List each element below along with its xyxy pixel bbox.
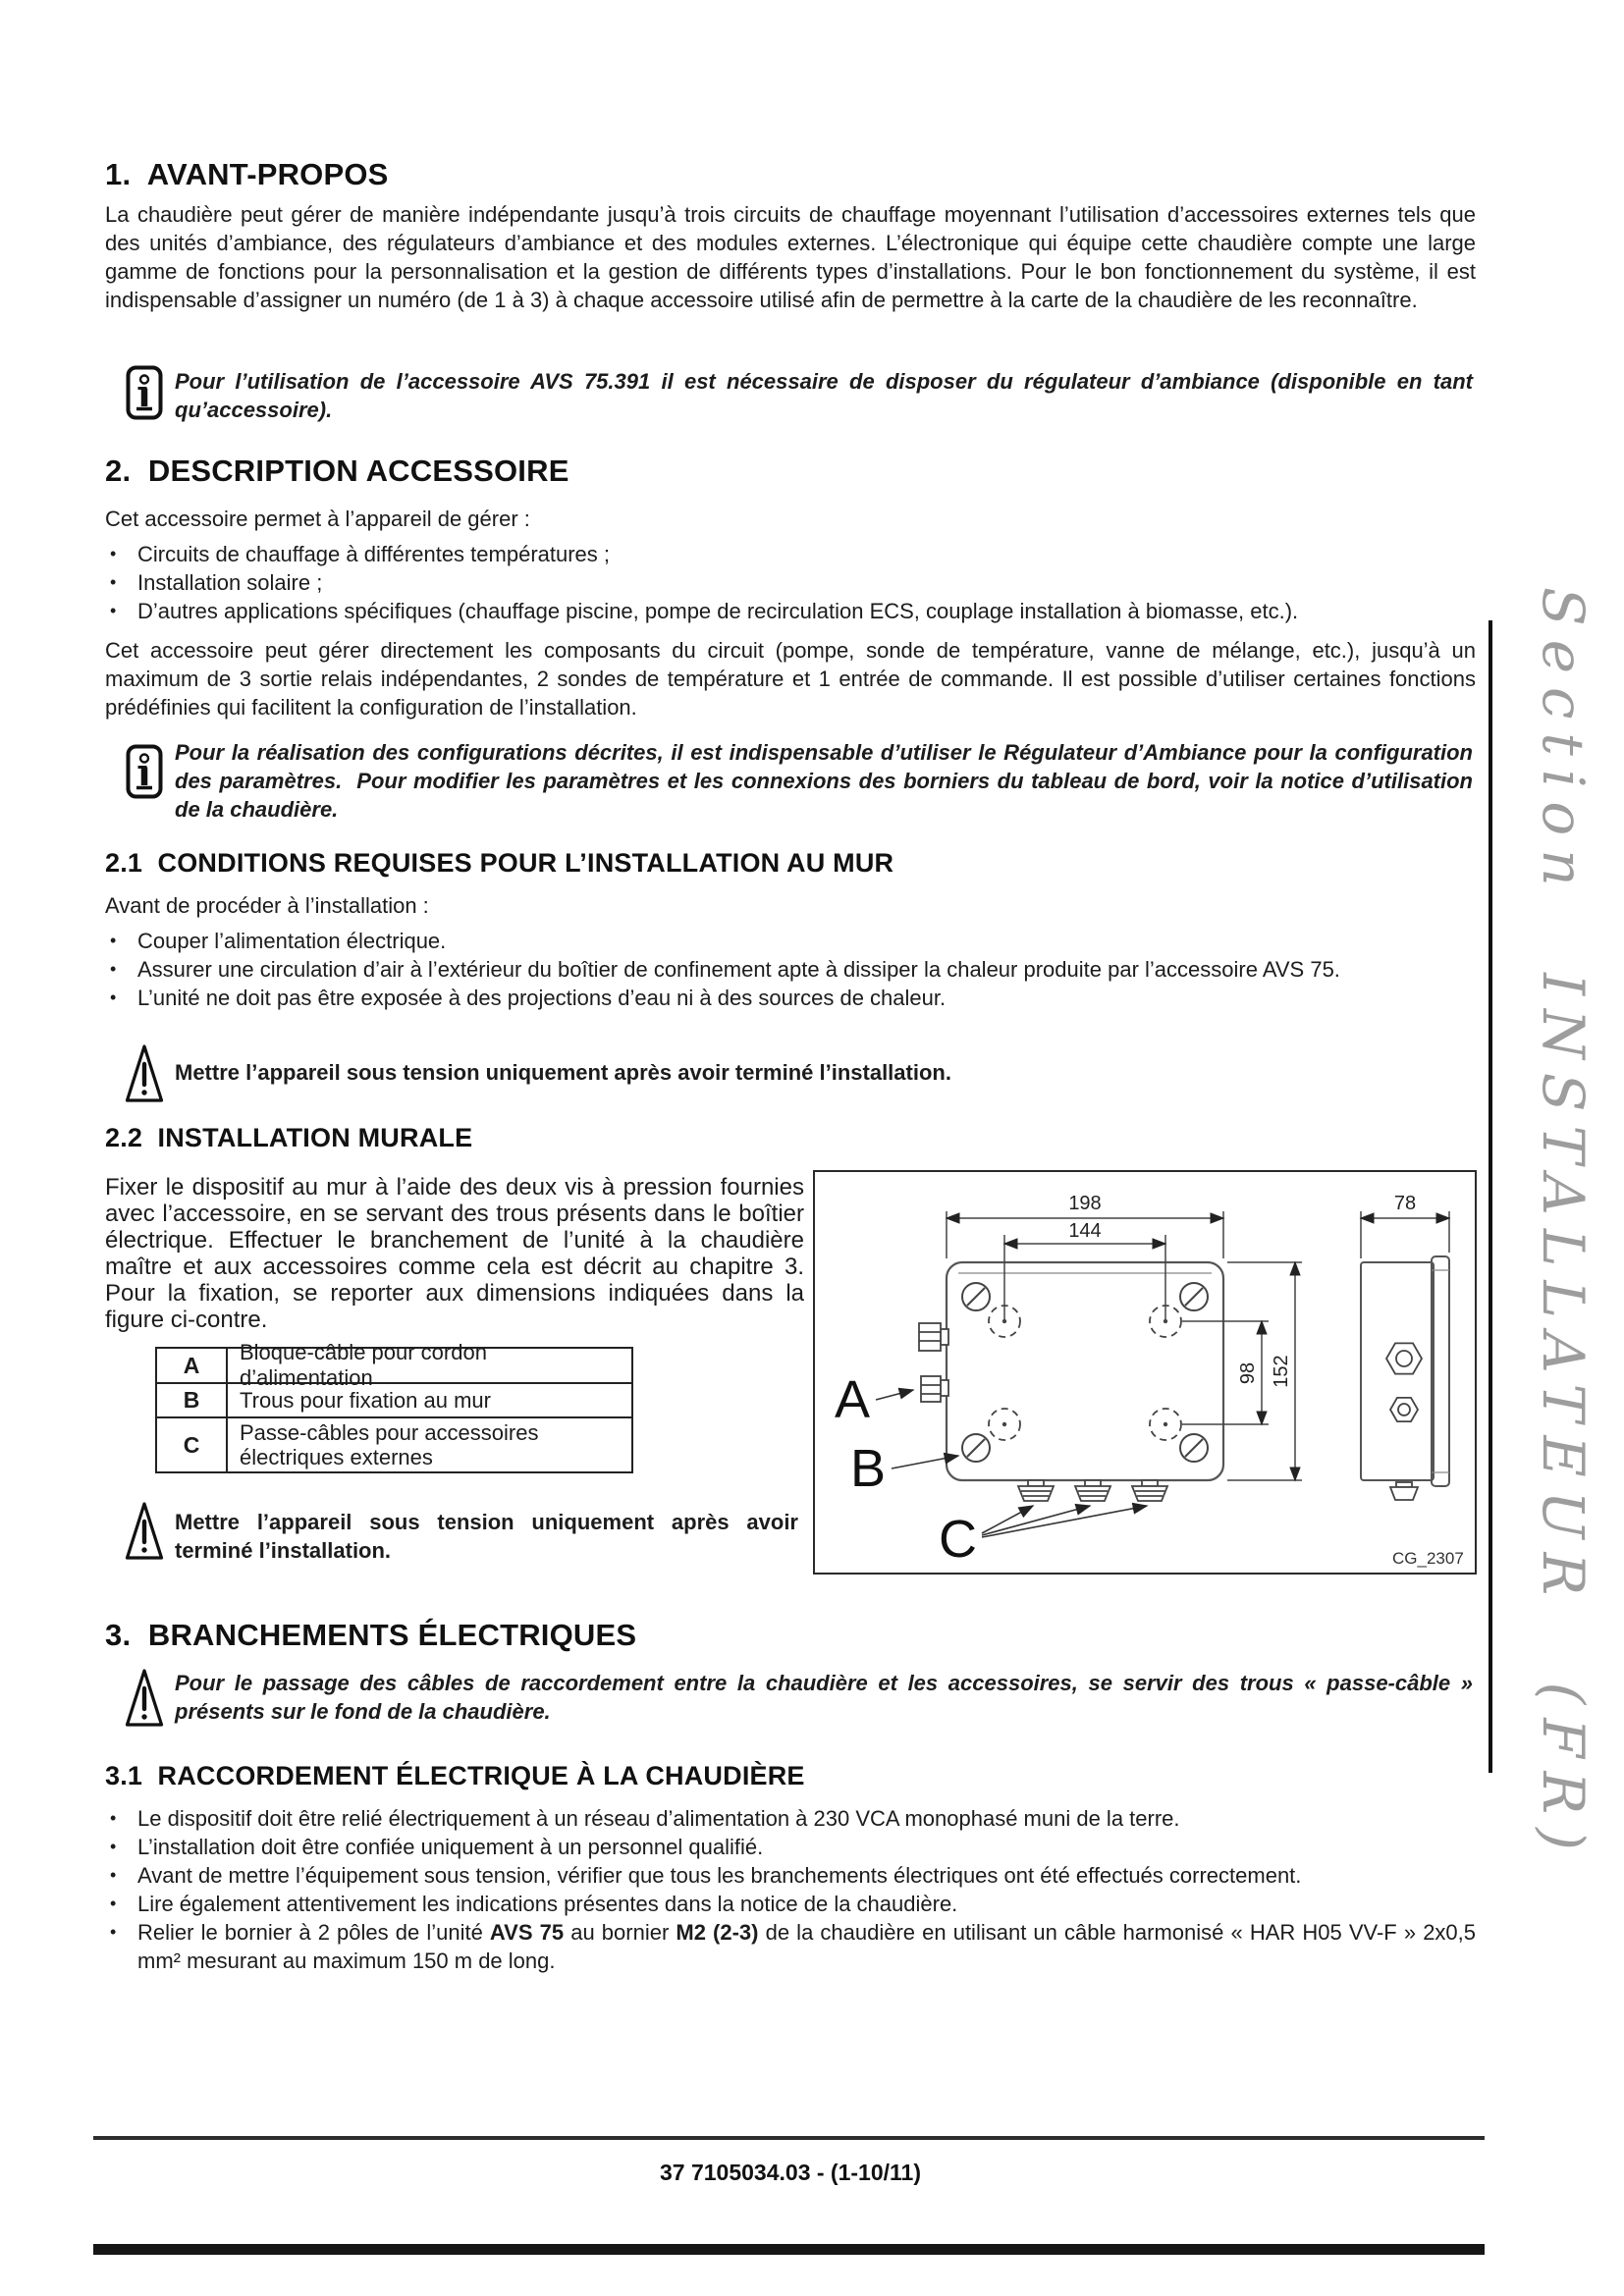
dim-label-198: 198 (1068, 1193, 1101, 1214)
side-view-glands (1386, 1343, 1422, 1500)
list-item-text: Avant de mettre l’équipement sous tensio… (137, 1861, 1476, 1890)
cable-gland-bottom (1018, 1480, 1167, 1501)
list-item: • Couper l’alimentation électrique. (105, 927, 1476, 955)
screw-icon (962, 1283, 1208, 1462)
warning-cable-passage: Pour le passage des câbles de raccordeme… (175, 1669, 1473, 1726)
margin-divider-line (1489, 620, 1492, 1773)
page-footer-code: 37 7105034.03 - (1-10/11) (105, 2160, 1476, 2186)
footer-bar (93, 2244, 1485, 2255)
list-item-text: Couper l’alimentation électrique. (137, 927, 1476, 955)
list-item: • Avant de mettre l’équipement sous tens… (105, 1861, 1476, 1890)
list-item-text: L’unité ne doit pas être exposée à des p… (137, 984, 1476, 1012)
front-view (947, 1262, 1223, 1480)
callout-label-b: B (850, 1439, 886, 1498)
section-2-1-intro: Avant de procéder à l’installation : (105, 891, 1476, 920)
list-item: • Le dispositif doit être relié électriq… (105, 1804, 1476, 1833)
legend-value-a: Bloque-câble pour cordon d’alimentation (228, 1349, 631, 1382)
list-item: • Circuits de chauffage à différentes te… (105, 540, 1476, 568)
legend-value-c: Passe-câbles pour accessoires électrique… (228, 1418, 631, 1471)
section-3-1-title: 3.1 RACCORDEMENT ÉLECTRIQUE À LA CHAUDIÈ… (105, 1761, 805, 1791)
callout-label-a: A (835, 1370, 870, 1429)
section-1-paragraph: La chaudière peut gérer de manière indép… (105, 200, 1476, 314)
bullet-icon: • (105, 984, 137, 1012)
section-1-title: 1. AVANT-PROPOS (105, 157, 389, 192)
list-item-text: Circuits de chauffage à différentes temp… (137, 540, 1476, 568)
list-item: • Relier le bornier à 2 pôles de l’unité… (105, 1918, 1476, 1975)
section-2-intro: Cet accessoire permet à l’appareil de gé… (105, 505, 1476, 533)
section-2-1-bullet-list: • Couper l’alimentation électrique. • As… (105, 927, 1476, 1012)
list-item: • D’autres applications spécifiques (cha… (105, 597, 1476, 625)
table-row: B Trous pour fixation au mur (157, 1382, 631, 1416)
legend-key-c: C (157, 1418, 228, 1471)
bullet-icon: • (105, 540, 137, 568)
bullet-text-segment: au bornier (564, 1920, 676, 1945)
dim-label-152: 152 (1271, 1355, 1292, 1387)
bullet-icon: • (105, 1890, 137, 1918)
bullet-icon: • (105, 1804, 137, 1833)
warning-icon (124, 1042, 165, 1105)
list-item: • L’unité ne doit pas être exposée à des… (105, 984, 1476, 1012)
callout-label-c: C (939, 1510, 977, 1569)
dimension-78 (1361, 1211, 1449, 1258)
legend-key-b: B (157, 1384, 228, 1416)
warning-power-2: Mettre l’appareil sous tension uniquemen… (175, 1508, 798, 1565)
section-2-paragraph: Cet accessoire peut gérer directement le… (105, 636, 1476, 721)
legend-key-a: A (157, 1349, 228, 1382)
fixation-hole (989, 1306, 1181, 1440)
bullet-icon: • (105, 927, 137, 955)
table-row: A Bloque-câble pour cordon d’alimentatio… (157, 1349, 631, 1382)
section-side-label: Section INSTALLATEUR (FR) (1530, 587, 1597, 1864)
dimension-144 (1004, 1235, 1165, 1319)
list-item-text: Relier le bornier à 2 pôles de l’unité A… (137, 1918, 1476, 1975)
note-avs75391: Pour l’utilisation de l’accessoire AVS 7… (175, 367, 1473, 424)
info-icon (126, 744, 163, 799)
bullet-icon: • (105, 955, 137, 984)
section-2-1-title: 2.1 CONDITIONS REQUISES POUR L’INSTALLAT… (105, 848, 893, 879)
list-item-text: D’autres applications spécifiques (chauf… (137, 597, 1476, 625)
info-icon (126, 365, 163, 420)
list-item: • Assurer une circulation d’air à l’exté… (105, 955, 1476, 984)
bold-m2: M2 (2-3) (676, 1920, 758, 1945)
mounting-diagram: 198 144 98 152 (813, 1170, 1477, 1575)
bullet-text-segment: Relier le bornier à 2 pôles de l’unité (137, 1920, 490, 1945)
table-row: C Passe-câbles pour accessoires électriq… (157, 1416, 631, 1471)
list-item-text: L’installation doit être confiée uniquem… (137, 1833, 1476, 1861)
legend-value-b: Trous pour fixation au mur (228, 1384, 631, 1416)
section-2-2-paragraph: Fixer le dispositif au mur à l’aide des … (105, 1174, 804, 1333)
cable-gland-left (919, 1323, 948, 1402)
list-item-text: Le dispositif doit être relié électrique… (137, 1804, 1476, 1833)
list-item-text: Lire également attentivement les indicat… (137, 1890, 1476, 1918)
footer-rule (93, 2136, 1485, 2140)
section-2-2-title: 2.2 INSTALLATION MURALE (105, 1123, 472, 1153)
section-2-title: 2. DESCRIPTION ACCESSOIRE (105, 454, 569, 489)
dim-label-98: 98 (1237, 1362, 1259, 1384)
bullet-icon: • (105, 597, 137, 625)
list-item: • Installation solaire ; (105, 568, 1476, 597)
bullet-icon: • (105, 1918, 137, 1947)
warning-icon (124, 1500, 165, 1563)
dim-label-144: 144 (1068, 1220, 1101, 1242)
bold-avs75: AVS 75 (490, 1920, 564, 1945)
list-item-text: Installation solaire ; (137, 568, 1476, 597)
section-3-title: 3. BRANCHEMENTS ÉLECTRIQUES (105, 1618, 636, 1653)
drawing-code: CG_2307 (1392, 1549, 1464, 1568)
section-2-bullet-list: • Circuits de chauffage à différentes te… (105, 540, 1476, 625)
list-item: • L’installation doit être confiée uniqu… (105, 1833, 1476, 1861)
legend-table: A Bloque-câble pour cordon d’alimentatio… (155, 1347, 633, 1473)
list-item-text: Assurer une circulation d’air à l’extéri… (137, 955, 1476, 984)
bullet-icon: • (105, 1833, 137, 1861)
bullet-icon: • (105, 1861, 137, 1890)
warning-power-1: Mettre l’appareil sous tension uniquemen… (175, 1058, 1473, 1087)
list-item: • Lire également attentivement les indic… (105, 1890, 1476, 1918)
dim-label-78: 78 (1394, 1193, 1416, 1214)
warning-icon (124, 1667, 165, 1730)
bullet-icon: • (105, 568, 137, 597)
section-3-1-bullet-list: • Le dispositif doit être relié électriq… (105, 1804, 1476, 1975)
note-regulateur: Pour la réalisation des configurations d… (175, 738, 1473, 824)
